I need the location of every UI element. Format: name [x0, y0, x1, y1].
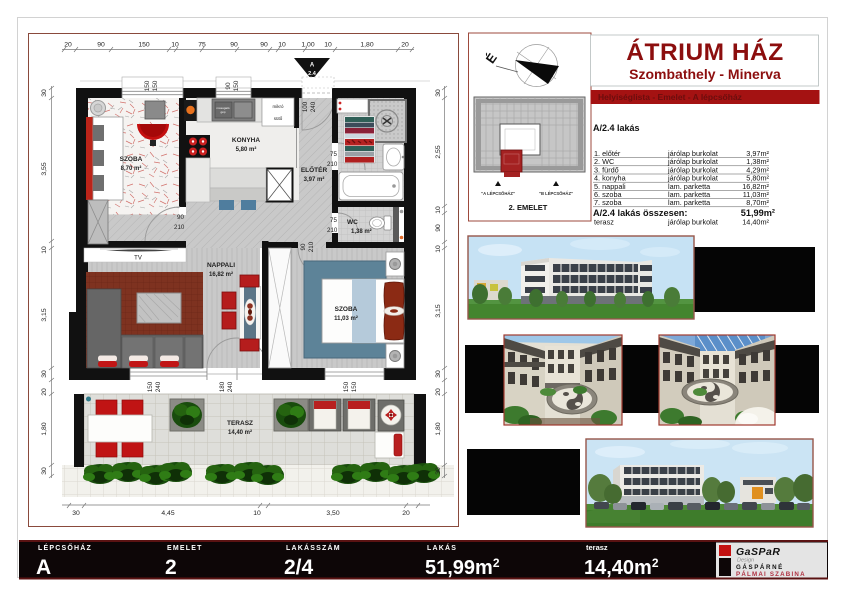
svg-text:NAPPALI: NAPPALI	[207, 262, 235, 269]
svg-text:150: 150	[343, 381, 350, 392]
svg-text:5,80 m²: 5,80 m²	[236, 146, 257, 153]
svg-text:3,55: 3,55	[41, 162, 48, 175]
svg-text:3,15: 3,15	[435, 304, 442, 317]
svg-text:3,15: 3,15	[41, 308, 48, 321]
svg-text:51,99m²: 51,99m²	[741, 208, 775, 218]
svg-text:gép: gép	[220, 110, 225, 114]
svg-text:30: 30	[435, 89, 442, 97]
svg-text:Szombathely - Minerva: Szombathely - Minerva	[629, 66, 781, 82]
svg-text:100: 100	[302, 101, 309, 112]
svg-text:90: 90	[177, 214, 184, 221]
svg-text:90: 90	[230, 42, 238, 49]
svg-text:ELŐTÉR: ELŐTÉR	[301, 165, 328, 174]
svg-text:2.4: 2.4	[308, 71, 317, 77]
svg-text:150: 150	[233, 80, 240, 91]
svg-text:75: 75	[330, 217, 337, 224]
svg-text:LAKÁSSZÁM: LAKÁSSZÁM	[286, 543, 341, 552]
svg-text:90: 90	[225, 82, 232, 90]
svg-text:2/4: 2/4	[284, 556, 314, 579]
svg-text:30: 30	[41, 467, 48, 475]
svg-text:A/2.4 lakás összesen:: A/2.4 lakás összesen:	[593, 208, 687, 218]
svg-text:TERASZ: TERASZ	[227, 420, 253, 427]
svg-text:2,55: 2,55	[435, 145, 442, 158]
svg-text:20: 20	[64, 42, 72, 49]
svg-text:210: 210	[327, 227, 338, 234]
svg-text:3,50: 3,50	[326, 510, 339, 517]
svg-text:150: 150	[152, 80, 159, 91]
svg-text:30: 30	[435, 467, 442, 475]
svg-text:LÉPCSŐHÁZ: LÉPCSŐHÁZ	[38, 543, 92, 552]
svg-text:lam. parketta: lam. parketta	[668, 198, 711, 207]
svg-text:A: A	[36, 556, 51, 579]
svg-text:10: 10	[41, 246, 48, 254]
svg-text:75: 75	[330, 151, 337, 158]
svg-text:járólap burkolat: járólap burkolat	[667, 218, 718, 227]
svg-text:210: 210	[308, 241, 315, 252]
svg-text:7. szoba: 7. szoba	[594, 198, 623, 207]
svg-text:1,38 m²: 1,38 m²	[351, 228, 372, 235]
svg-text:"B LÉPCSŐHÁZ": "B LÉPCSŐHÁZ"	[539, 191, 573, 196]
svg-text:90: 90	[300, 243, 307, 250]
svg-text:8,70m²: 8,70m²	[746, 198, 769, 207]
svg-text:GaSPaR: GaSPaR	[736, 546, 780, 558]
svg-text:2. EMELET: 2. EMELET	[509, 203, 548, 212]
svg-text:mikró: mikró	[273, 104, 284, 109]
svg-text:sütő: sütő	[274, 116, 283, 121]
svg-text:30: 30	[72, 510, 80, 517]
svg-text:1,80: 1,80	[360, 42, 373, 49]
svg-text:150: 150	[147, 381, 154, 392]
svg-text:KONYHA: KONYHA	[232, 137, 260, 144]
svg-text:WC: WC	[347, 219, 358, 226]
svg-text:TV: TV	[134, 256, 142, 262]
svg-text:A/2.4 lakás: A/2.4 lakás	[593, 123, 640, 133]
svg-text:Helyiséglista - Emelet - A: Helyiséglista - Emelet - A lépcsőház	[598, 92, 742, 102]
svg-text:30: 30	[41, 89, 48, 97]
svg-text:180: 180	[219, 381, 226, 392]
svg-text:10: 10	[324, 42, 332, 49]
svg-text:20: 20	[401, 42, 409, 49]
svg-text:30: 30	[41, 370, 48, 378]
svg-text:210: 210	[327, 161, 338, 168]
svg-text:51,99m2: 51,99m2	[425, 556, 500, 579]
svg-text:terasz: terasz	[594, 218, 614, 227]
svg-text:PÁLMAI SZABINA: PÁLMAI SZABINA	[736, 571, 806, 578]
svg-text:240: 240	[310, 101, 317, 112]
svg-text:8,70 m²: 8,70 m²	[121, 165, 142, 172]
svg-text:14,40 m²: 14,40 m²	[228, 429, 252, 436]
svg-text:150: 150	[144, 80, 151, 91]
svg-text:240: 240	[155, 381, 162, 392]
svg-text:14,40m2: 14,40m2	[584, 556, 659, 579]
svg-text:EMELET: EMELET	[167, 545, 203, 552]
svg-text:terasz: terasz	[586, 543, 608, 552]
svg-text:16,82 m²: 16,82 m²	[209, 271, 233, 278]
svg-text:2: 2	[165, 556, 177, 579]
svg-text:20: 20	[435, 388, 442, 396]
svg-text:LAKÁS: LAKÁS	[427, 543, 457, 552]
svg-text:20: 20	[402, 510, 410, 517]
svg-text:210: 210	[174, 224, 185, 231]
svg-text:3,97 m²: 3,97 m²	[304, 176, 325, 183]
svg-text:90: 90	[260, 42, 268, 49]
svg-text:90: 90	[97, 42, 105, 49]
svg-text:75: 75	[198, 42, 206, 49]
svg-text:1,80: 1,80	[41, 422, 48, 435]
svg-text:A: A	[310, 63, 315, 69]
svg-text:90: 90	[435, 224, 442, 232]
svg-text:10: 10	[435, 206, 442, 214]
svg-text:10: 10	[278, 42, 286, 49]
svg-text:14,40m²: 14,40m²	[742, 218, 769, 227]
svg-text:Design: Design	[737, 558, 754, 564]
svg-text:ÁTRIUM HÁZ: ÁTRIUM HÁZ	[626, 38, 783, 66]
svg-text:11,03 m²: 11,03 m²	[334, 315, 358, 322]
svg-text:1,00: 1,00	[301, 42, 314, 49]
svg-text:SZOBA: SZOBA	[335, 306, 358, 313]
svg-text:30: 30	[435, 370, 442, 378]
svg-text:GÁSPÁRNÉ: GÁSPÁRNÉ	[736, 563, 784, 571]
svg-text:150: 150	[138, 42, 150, 49]
svg-text:240: 240	[227, 381, 234, 392]
svg-text:10: 10	[253, 510, 261, 517]
svg-text:"A LÉPCSŐHÁZ": "A LÉPCSŐHÁZ"	[481, 191, 515, 196]
svg-text:10: 10	[435, 245, 442, 253]
svg-text:SZOBA: SZOBA	[120, 156, 143, 163]
svg-text:10: 10	[171, 42, 179, 49]
svg-text:150: 150	[351, 381, 358, 392]
svg-text:20: 20	[41, 388, 48, 396]
svg-text:4,45: 4,45	[161, 510, 174, 517]
svg-text:1,80: 1,80	[435, 422, 442, 435]
